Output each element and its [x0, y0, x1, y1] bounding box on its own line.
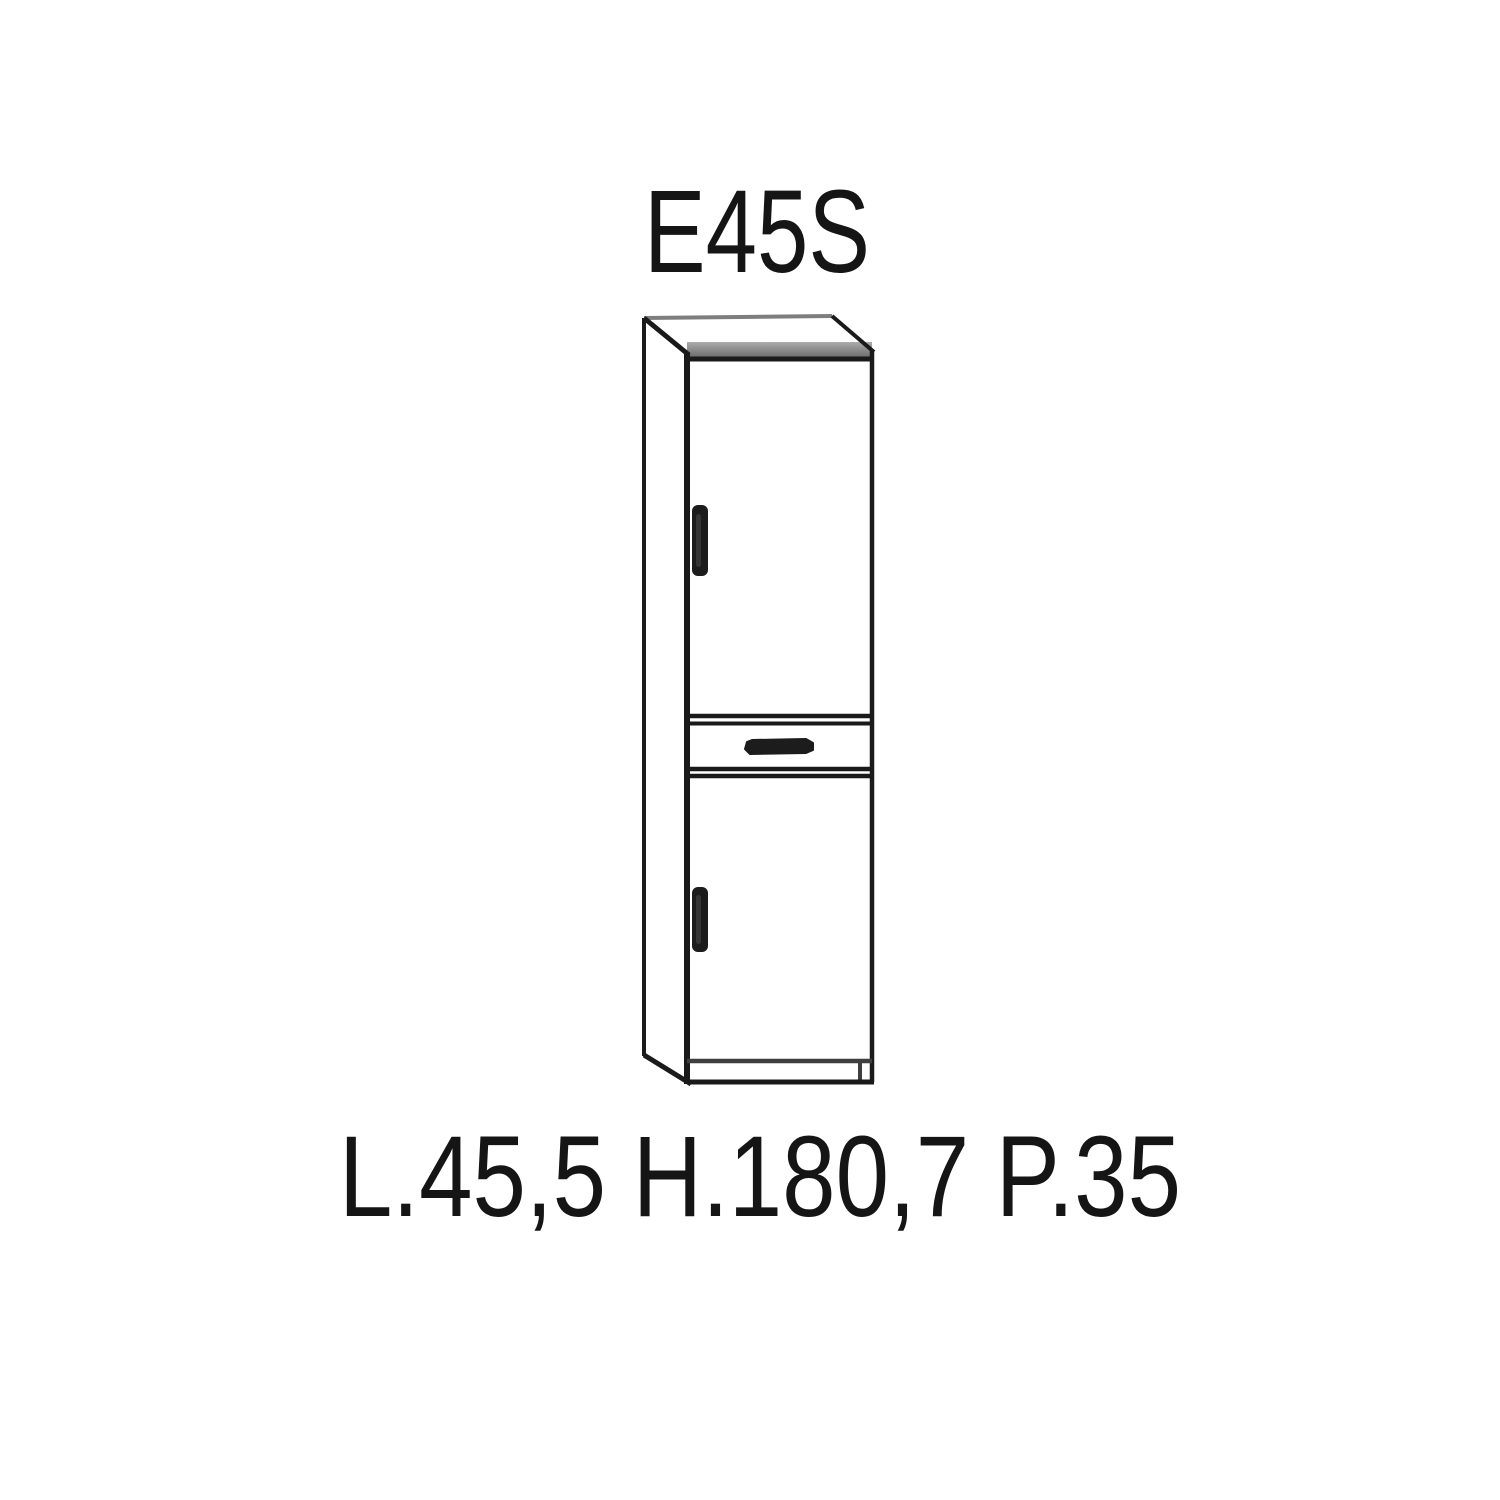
cabinet-top-back-edge	[644, 316, 832, 318]
bottom-door-handle-highlight	[696, 895, 701, 944]
dimensions-label: L.45,5 H.180,7 P.35	[339, 1113, 1181, 1241]
product-code-label: E45S	[644, 166, 870, 298]
top-door-handle-highlight	[696, 514, 701, 567]
drawer-handle	[745, 739, 813, 754]
cabinet-technical-drawing: E45S L.45,5 H.180,7 P.35	[0, 0, 1500, 1500]
page: E45S L.45,5 H.180,7 P.35	[0, 0, 1500, 1500]
cabinet-top-front-band	[687, 342, 872, 357]
cabinet-bottom-left-edge	[644, 1055, 691, 1084]
